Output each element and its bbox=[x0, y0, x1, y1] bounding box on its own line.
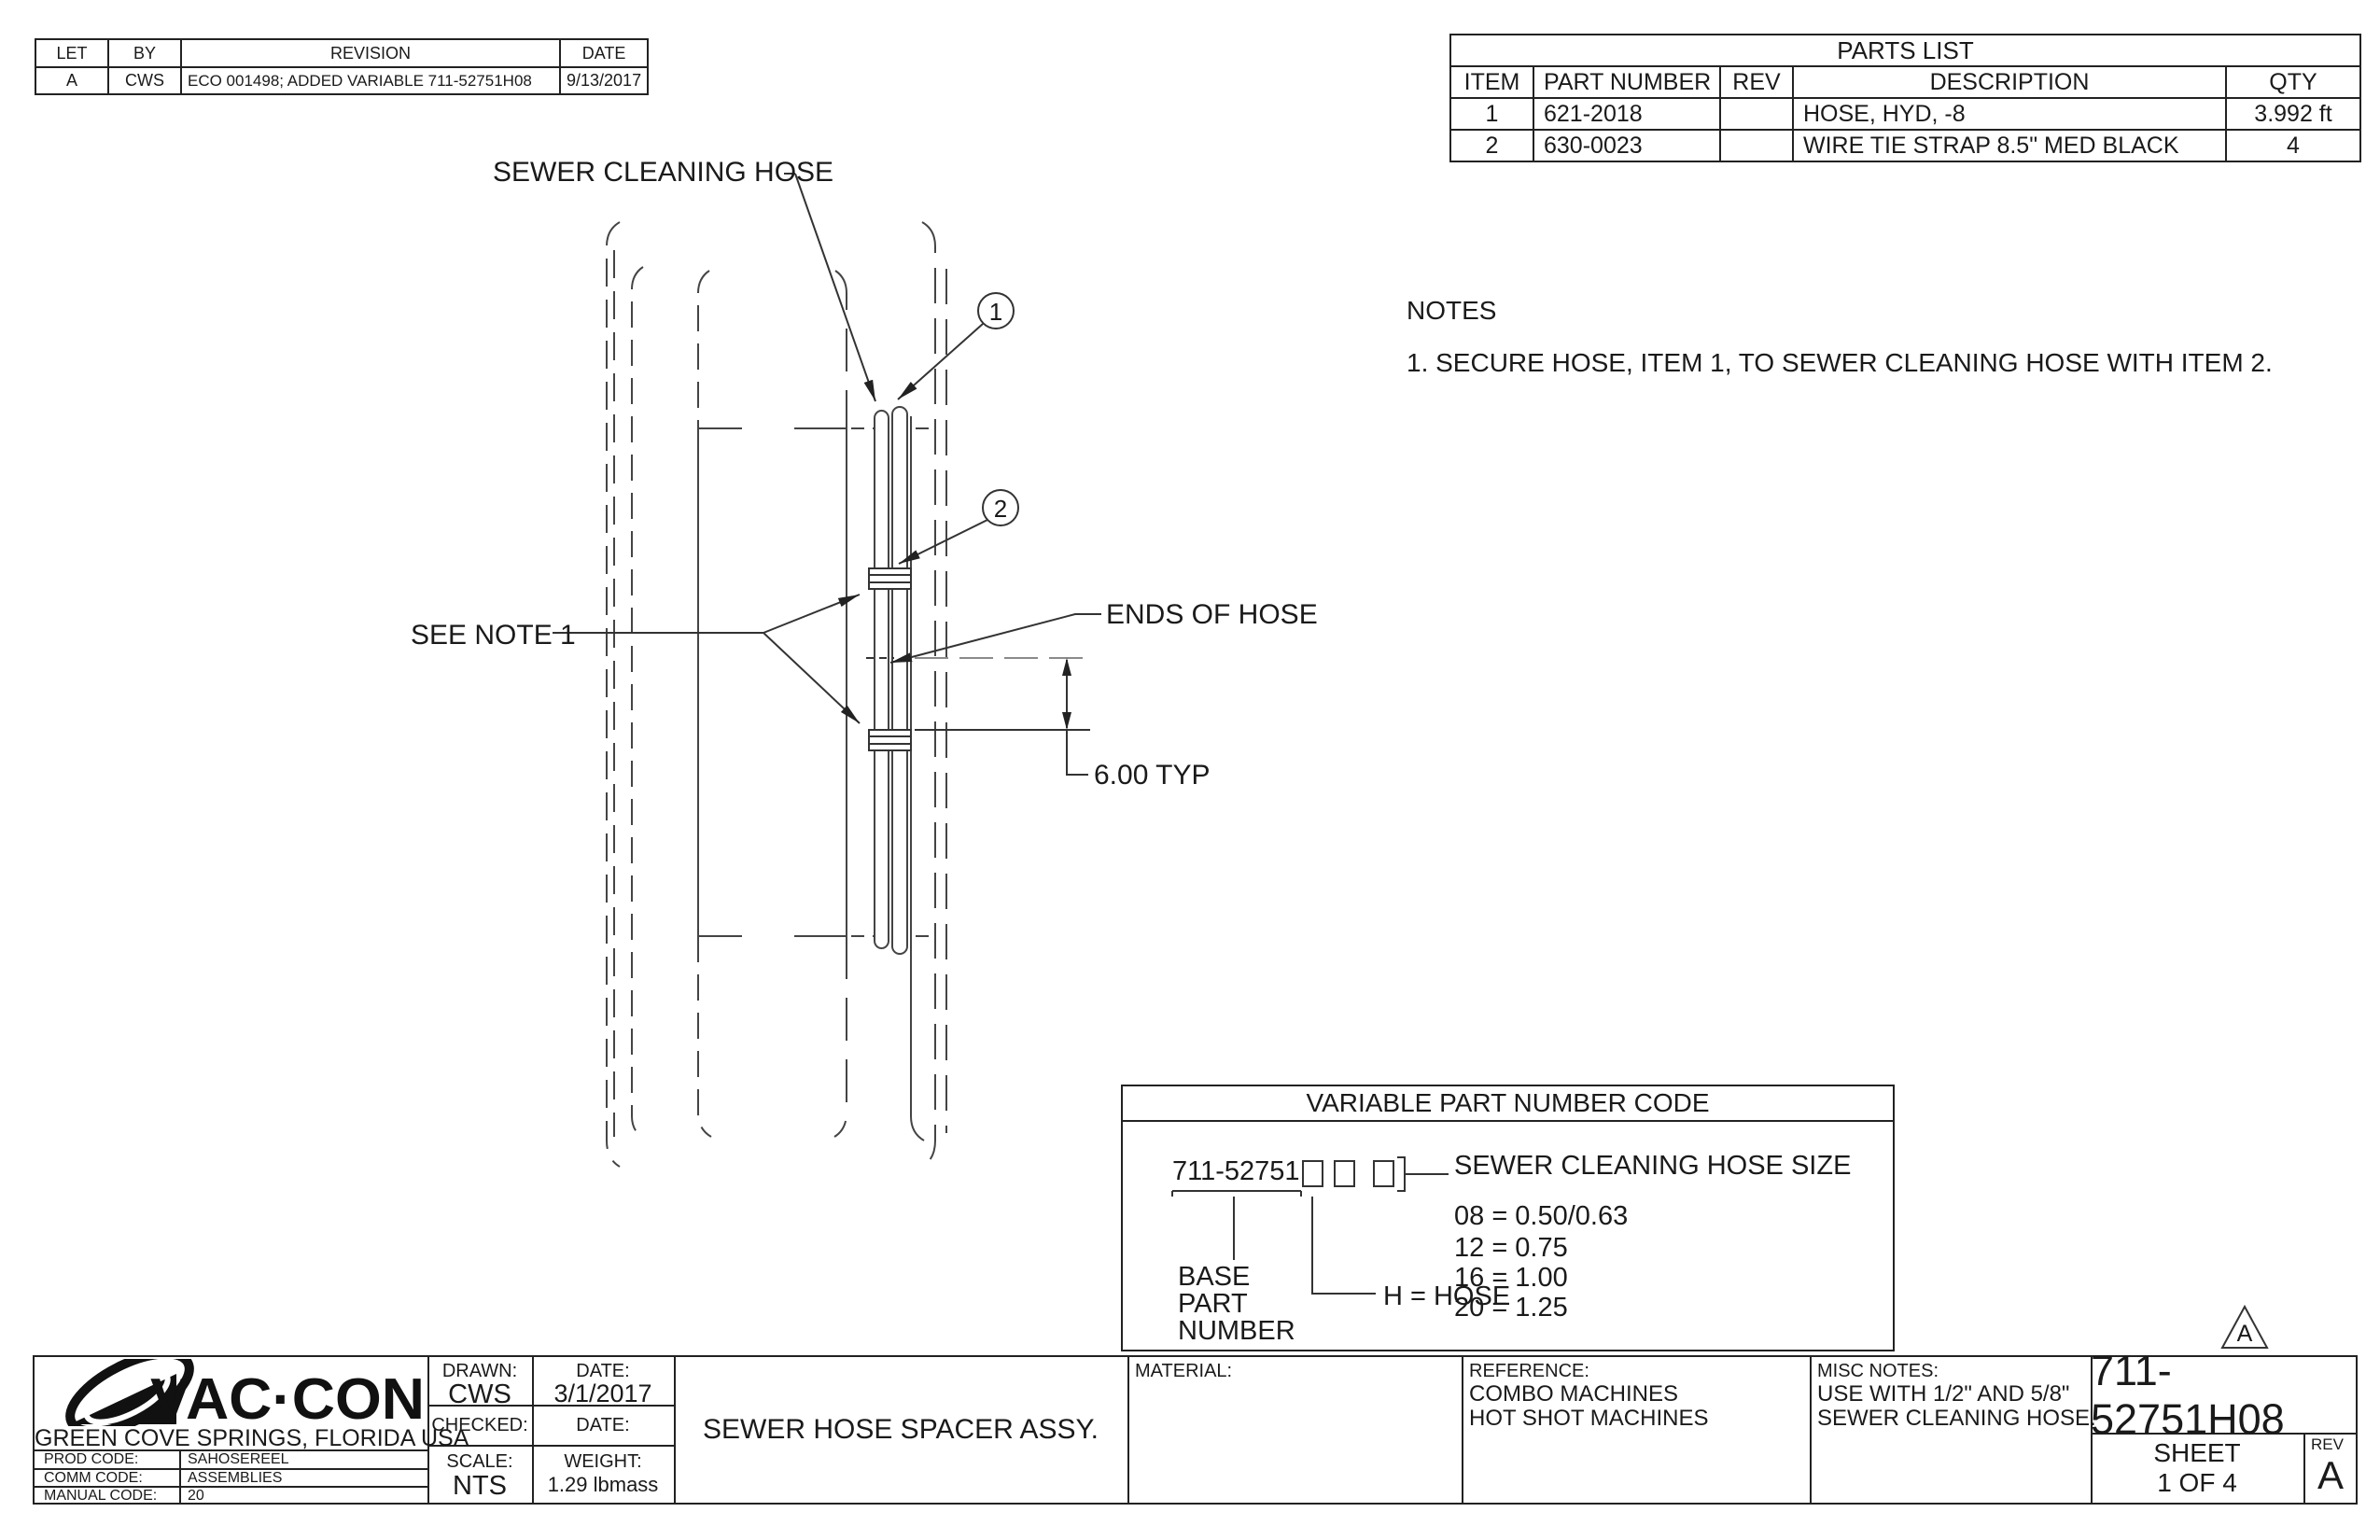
title-block-divider bbox=[1810, 1357, 1812, 1503]
drawing-sheet: LET BY REVISION DATE A CWS ECO 001498; A… bbox=[0, 0, 2380, 1540]
ends-of-hose-leader bbox=[890, 614, 1101, 663]
reference-line-2: HOT SHOT MACHINES bbox=[1469, 1407, 1708, 1431]
see-note-1-label: SEE NOTE 1 bbox=[411, 620, 576, 651]
left-flange-outer-line bbox=[607, 222, 620, 1167]
balloon-2-leader bbox=[899, 520, 987, 564]
dimension-leader bbox=[1067, 730, 1088, 775]
company-location: GREEN COVE SPRINGS, FLORIDA USA bbox=[35, 1426, 427, 1452]
prod-code-label: PROD CODE: bbox=[44, 1451, 138, 1468]
title-block-part-number: 711-52751H08 bbox=[2091, 1357, 2358, 1433]
hose-code-label: H = HOSE bbox=[1383, 1282, 1510, 1312]
right-drum-face-lower bbox=[834, 936, 847, 1137]
weight-value: 1.29 lbmass bbox=[532, 1474, 674, 1496]
codes-column-divider bbox=[179, 1449, 181, 1503]
manual-code-value: 20 bbox=[188, 1488, 204, 1505]
drawn-value: CWS bbox=[427, 1380, 532, 1410]
sheet-value: 1 OF 4 bbox=[2157, 1468, 2237, 1498]
balloon-1-number: 1 bbox=[989, 298, 1002, 326]
balloon-2-number: 2 bbox=[994, 495, 1007, 523]
comm-code-label: COMM CODE: bbox=[44, 1470, 143, 1487]
sewer-hose-leader bbox=[795, 174, 875, 401]
variable-base-number: 711-52751 bbox=[1172, 1157, 1300, 1187]
dimension-arrow-down bbox=[1062, 712, 1071, 730]
vaccon-logo: VAC·CON bbox=[36, 1359, 427, 1426]
sheet-cell: SHEET 1 OF 4 bbox=[2091, 1433, 2303, 1503]
misc-notes-line-2: SEWER CLEANING HOSE. bbox=[1817, 1407, 2096, 1431]
see-note-1-leader-upper bbox=[763, 595, 860, 633]
logo-wordmark: VAC·CON bbox=[150, 1367, 425, 1426]
misc-notes-label: MISC NOTES: bbox=[1817, 1361, 1939, 1381]
variable-code-title: VARIABLE PART NUMBER CODE bbox=[1123, 1086, 1893, 1122]
hose-wraps bbox=[875, 407, 924, 1141]
reference-line-1: COMBO MACHINES bbox=[1469, 1382, 1678, 1407]
left-drum-face-upper bbox=[698, 271, 709, 428]
sheet-label: SHEET bbox=[2153, 1438, 2240, 1468]
leader-lines bbox=[553, 174, 1101, 723]
scale-label: SCALE: bbox=[427, 1451, 532, 1472]
wire-tie-lower bbox=[869, 730, 911, 750]
sewer-cleaning-hose-label: SEWER CLEANING HOSE bbox=[493, 157, 833, 188]
left-drum-face-lower bbox=[698, 936, 711, 1137]
left-flange-inner-line bbox=[632, 267, 644, 1139]
hose-tube-right bbox=[892, 407, 907, 954]
manual-code-label: MANUAL CODE: bbox=[44, 1488, 157, 1505]
see-note-1-leader-lower bbox=[763, 633, 860, 723]
title-block: VAC·CON GREEN COVE SPRINGS, FLORIDA USA … bbox=[33, 1355, 2358, 1505]
item-balloons: 1 2 bbox=[978, 293, 1018, 525]
rev-value: A bbox=[2303, 1449, 2358, 1503]
hose-outer-line bbox=[911, 416, 924, 1141]
reference-label: REFERENCE: bbox=[1469, 1361, 1589, 1381]
title-block-divider bbox=[1462, 1357, 1463, 1503]
drawn-date-value: 3/1/2017 bbox=[532, 1380, 674, 1408]
material-label: MATERIAL: bbox=[1135, 1361, 1232, 1381]
prod-code-value: SAHOSEREEL bbox=[188, 1451, 288, 1468]
dimension-6-typ: 6.00 TYP bbox=[915, 658, 1211, 791]
misc-notes-line-1: USE WITH 1/2" AND 5/8" bbox=[1817, 1382, 2069, 1407]
wire-tie-upper bbox=[869, 568, 911, 589]
drawing-title: SEWER HOSE SPACER ASSY. bbox=[674, 1357, 1127, 1503]
comm-code-value: ASSEMBLIES bbox=[188, 1470, 282, 1487]
variable-size-08: 08 = 0.50/0.63 bbox=[1454, 1202, 1628, 1232]
hose-tube-left bbox=[875, 411, 889, 948]
revision-triangle-letter: A bbox=[2237, 1321, 2253, 1347]
drawn-date-label: DATE: bbox=[532, 1361, 674, 1381]
checked-label: CHECKED: bbox=[427, 1415, 532, 1435]
title-block-divider bbox=[1127, 1357, 1129, 1503]
checked-date-label: DATE: bbox=[532, 1415, 674, 1435]
right-flange-outer-line bbox=[922, 222, 935, 1167]
revision-triangle-marker: A bbox=[2222, 1307, 2267, 1348]
ends-of-hose-label: ENDS OF HOSE bbox=[1106, 599, 1318, 630]
scale-value: NTS bbox=[427, 1472, 532, 1502]
variable-size-label: SEWER CLEANING HOSE SIZE bbox=[1454, 1152, 1851, 1182]
base-label-line-3: NUMBER bbox=[1178, 1317, 1295, 1347]
variable-size-12: 12 = 0.75 bbox=[1454, 1234, 1568, 1264]
dimension-text: 6.00 TYP bbox=[1094, 760, 1211, 791]
balloon-1-leader bbox=[898, 324, 983, 399]
weight-label: WEIGHT: bbox=[532, 1451, 674, 1472]
drawn-label: DRAWN: bbox=[427, 1361, 532, 1381]
dimension-arrow-up bbox=[1062, 658, 1071, 676]
